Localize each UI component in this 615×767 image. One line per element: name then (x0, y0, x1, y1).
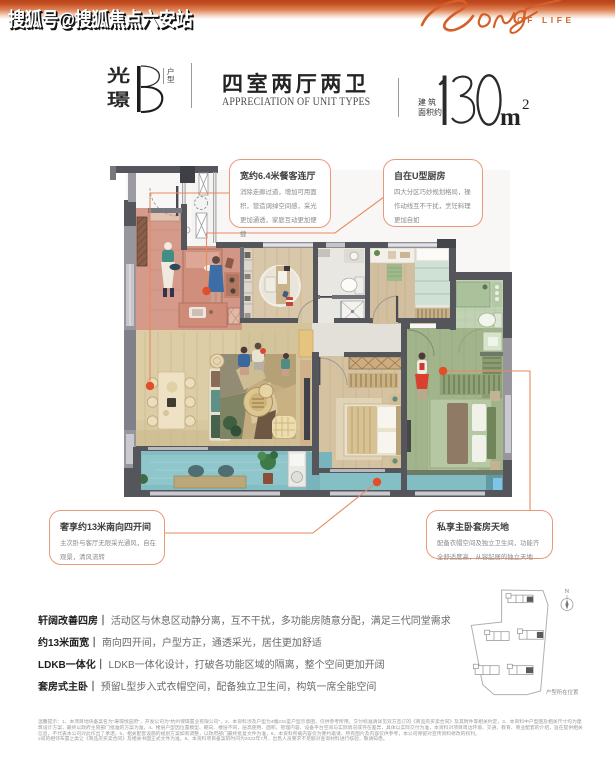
svg-text:户型所在位置: 户型所在位置 (546, 688, 579, 696)
svg-text:N: N (565, 588, 570, 595)
svg-text:OF LIFE: OF LIFE (517, 15, 575, 25)
